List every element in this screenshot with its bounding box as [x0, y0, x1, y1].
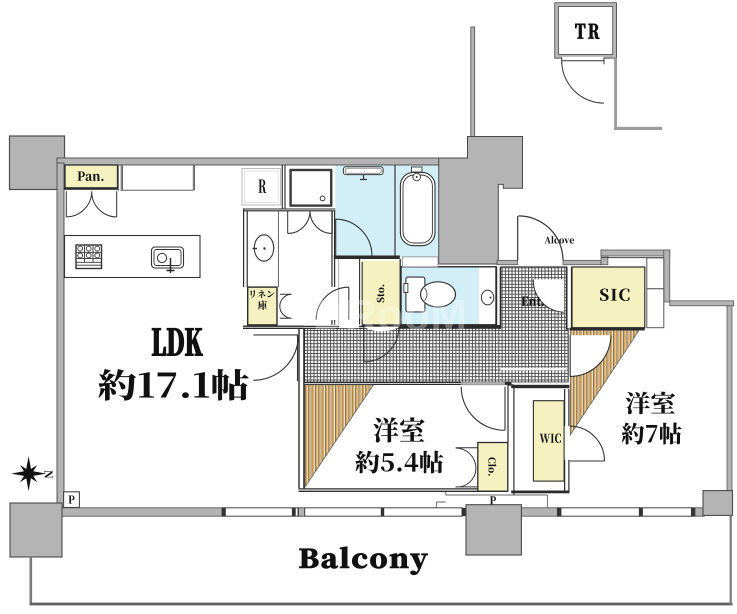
svg-text:DRooM: DRooM [313, 291, 467, 340]
